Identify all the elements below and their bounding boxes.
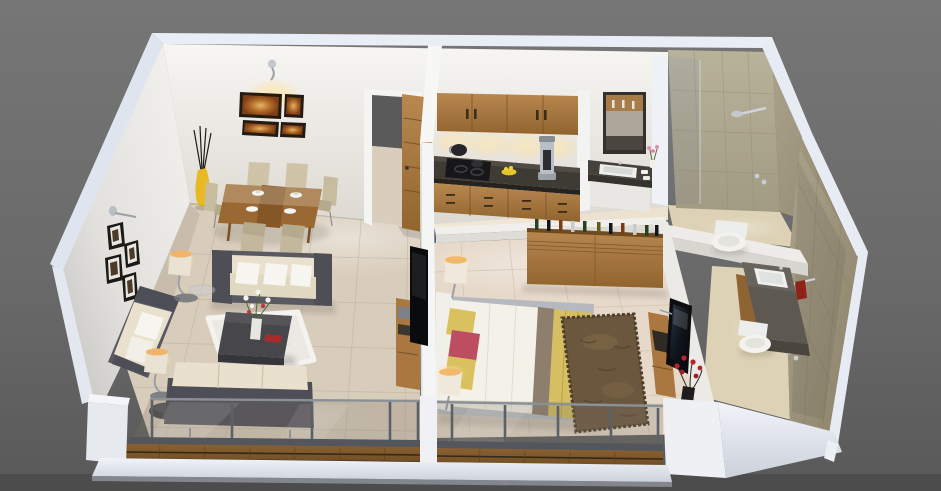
balcony bbox=[86, 394, 842, 487]
glass-side-table bbox=[189, 285, 215, 295]
sconce-plate-icon bbox=[268, 60, 276, 68]
lamp1-base bbox=[174, 294, 198, 303]
fruit-1 bbox=[504, 167, 508, 171]
cooktop bbox=[445, 158, 491, 181]
balcony-divider bbox=[420, 396, 437, 470]
kettle-icon bbox=[451, 144, 467, 156]
pillow-2 bbox=[263, 263, 288, 286]
sofa-north bbox=[210, 250, 336, 314]
bath2-corner-block bbox=[663, 398, 726, 478]
shower-head-icon bbox=[731, 111, 743, 117]
fruit-bowl bbox=[502, 169, 517, 176]
rug-patch-2 bbox=[602, 382, 634, 398]
door-knob-icon bbox=[405, 166, 409, 170]
towel-2 bbox=[643, 176, 650, 180]
framed-artworks bbox=[239, 92, 306, 138]
toilet2-seat bbox=[745, 338, 765, 348]
tv-living-sheen bbox=[412, 252, 426, 300]
lamp1-top bbox=[170, 250, 192, 257]
pillow-3 bbox=[290, 264, 312, 287]
sofa-south-cushions bbox=[172, 362, 308, 390]
bath1-glass-door bbox=[668, 56, 700, 204]
toilet1-seat bbox=[718, 236, 740, 247]
bath1-glass-frame bbox=[652, 54, 668, 206]
apartment-render: 3D isometric cutaway render of a one-bed… bbox=[0, 0, 941, 491]
door-jamb bbox=[364, 92, 372, 226]
pot-icon bbox=[471, 160, 483, 167]
bedlamp1-top bbox=[445, 256, 467, 264]
shower-valve2-icon bbox=[762, 180, 767, 185]
fruit-2 bbox=[509, 166, 513, 170]
towel-1 bbox=[641, 170, 648, 174]
bedlamp2-top bbox=[439, 368, 461, 376]
cushion-seam-1 bbox=[218, 364, 219, 388]
sofa-north-arm-left bbox=[212, 250, 232, 304]
lamp2-top bbox=[146, 348, 168, 355]
flower-vase bbox=[250, 318, 262, 340]
upper-cabinets bbox=[437, 93, 578, 135]
sofa-north-arm-right bbox=[314, 253, 332, 306]
coffee-maker bbox=[538, 136, 556, 180]
toilet-common bbox=[712, 220, 748, 255]
mirror-reflection-counter bbox=[606, 136, 643, 150]
faucet-icon bbox=[618, 161, 621, 164]
shower-valve-icon bbox=[755, 174, 760, 179]
pillow-1 bbox=[235, 262, 260, 285]
cushion-seam-2 bbox=[262, 365, 263, 389]
wall-bracket-icon bbox=[109, 206, 117, 216]
mixer-valve2-icon bbox=[794, 356, 799, 361]
parapet-left-face bbox=[86, 402, 128, 464]
render-canvas: 3D isometric cutaway render of a one-bed… bbox=[0, 0, 941, 491]
vanity-faucet-icon bbox=[779, 266, 783, 270]
